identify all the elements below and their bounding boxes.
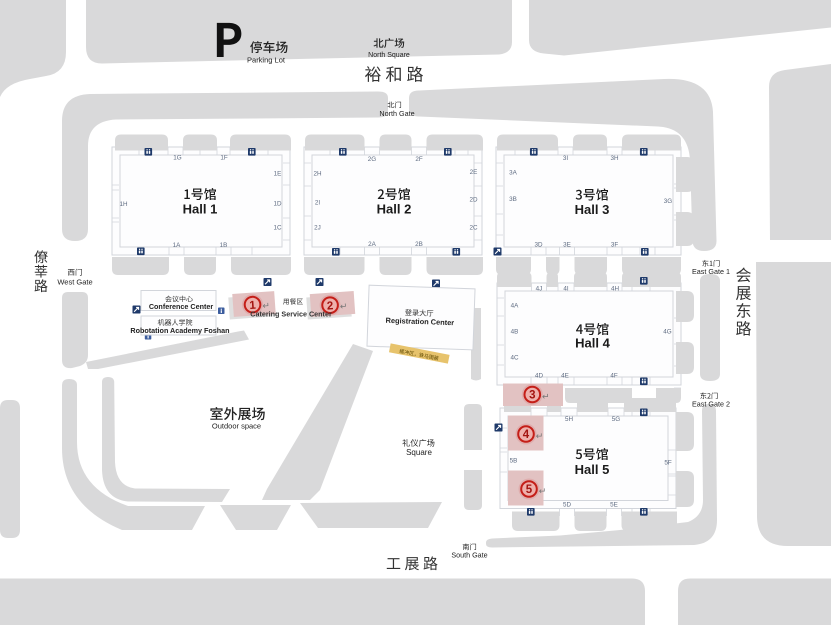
svg-text:2E: 2E	[470, 169, 478, 176]
svg-text:Square: Square	[406, 448, 432, 457]
svg-text:4: 4	[523, 429, 530, 441]
svg-text:↵: ↵	[536, 431, 544, 441]
svg-text:4I: 4I	[563, 286, 569, 293]
svg-text:2H: 2H	[313, 171, 322, 178]
svg-text:3B: 3B	[509, 196, 517, 203]
svg-text:2G: 2G	[368, 156, 377, 163]
svg-text:Hall 1: Hall 1	[183, 202, 218, 217]
svg-text:North Square: North Square	[368, 52, 410, 59]
svg-text:3A: 3A	[509, 170, 518, 177]
svg-text:2C: 2C	[469, 225, 478, 232]
svg-text:Robotation Academy Foshan: Robotation Academy Foshan	[130, 326, 229, 335]
svg-text:Outdoor space: Outdoor space	[212, 422, 261, 431]
svg-text:2B: 2B	[415, 241, 423, 248]
svg-text:↵: ↵	[340, 301, 348, 312]
svg-text:Catering Service Center: Catering Service Center	[250, 310, 332, 319]
svg-text:East Gate 2: East Gate 2	[692, 400, 730, 409]
svg-text:West Gate: West Gate	[57, 278, 92, 287]
svg-text:1D: 1D	[273, 201, 282, 208]
svg-text:1E: 1E	[274, 171, 282, 178]
svg-text:4D: 4D	[535, 373, 544, 380]
svg-text:Conference Center: Conference Center	[149, 302, 214, 311]
svg-text:5G: 5G	[612, 416, 621, 423]
svg-text:5H: 5H	[565, 416, 574, 423]
svg-text:1G: 1G	[173, 155, 182, 162]
svg-text:5D: 5D	[563, 502, 572, 509]
svg-text:5B: 5B	[510, 458, 518, 465]
svg-text:↵: ↵	[542, 392, 550, 402]
svg-text:East Gate 1: East Gate 1	[692, 267, 730, 276]
svg-text:North Gate: North Gate	[379, 109, 414, 118]
svg-text:Parking Lot: Parking Lot	[247, 56, 286, 65]
svg-text:1H: 1H	[119, 201, 128, 208]
svg-text:5: 5	[526, 484, 533, 496]
svg-text:5F: 5F	[664, 460, 672, 467]
svg-text:3E: 3E	[563, 242, 571, 249]
svg-text:3I: 3I	[563, 155, 569, 162]
svg-text:1B: 1B	[220, 242, 228, 249]
svg-text:2D: 2D	[469, 197, 478, 204]
svg-text:4H: 4H	[611, 286, 620, 293]
svg-text:Hall 5: Hall 5	[575, 462, 610, 477]
svg-text:1F: 1F	[220, 155, 228, 162]
svg-text:4E: 4E	[561, 373, 569, 380]
svg-text:2I: 2I	[315, 200, 321, 207]
svg-text:3D: 3D	[534, 242, 543, 249]
svg-text:2F: 2F	[415, 156, 423, 163]
svg-text:4G: 4G	[663, 329, 672, 336]
svg-text:2J: 2J	[314, 225, 321, 232]
svg-text:4F: 4F	[610, 373, 618, 380]
svg-text:1C: 1C	[273, 225, 282, 232]
svg-text:4A: 4A	[511, 303, 520, 310]
svg-text:1A: 1A	[173, 242, 182, 249]
svg-text:3H: 3H	[610, 155, 619, 162]
svg-text:3G: 3G	[664, 198, 673, 205]
svg-text:3: 3	[529, 390, 535, 402]
svg-text:Hall 3: Hall 3	[575, 202, 610, 217]
svg-text:4B: 4B	[511, 329, 519, 336]
svg-text:Hall 4: Hall 4	[575, 336, 610, 351]
svg-text:↵: ↵	[539, 486, 547, 496]
svg-text:Hall 2: Hall 2	[377, 202, 412, 217]
svg-text:4C: 4C	[510, 355, 519, 362]
svg-text:2A: 2A	[368, 241, 377, 248]
svg-text:South Gate: South Gate	[451, 551, 487, 560]
svg-text:4J: 4J	[536, 286, 543, 293]
svg-text:3F: 3F	[611, 242, 619, 249]
svg-text:5E: 5E	[610, 502, 618, 509]
